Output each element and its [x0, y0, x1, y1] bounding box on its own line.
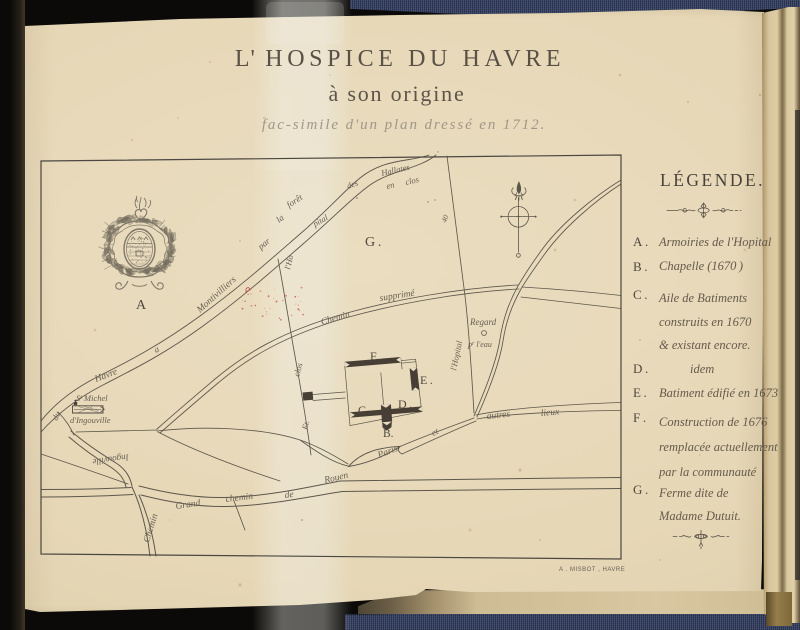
svg-text:Et.: Et. [300, 419, 311, 431]
svg-text:chemin: chemin [225, 492, 254, 505]
svg-text:a: a [152, 344, 161, 355]
svg-text:lieux: lieux [540, 407, 560, 419]
svg-text:St Michel: St Michel [76, 393, 108, 403]
svg-text:du: du [50, 410, 63, 422]
svg-text:de: de [284, 490, 294, 501]
svg-text:autres: autres [486, 410, 511, 422]
svg-text:d'Ingouville: d'Ingouville [70, 415, 111, 425]
svg-text:en: en [385, 179, 395, 191]
svg-text:forêt: forêt [285, 192, 305, 210]
svg-text:la: la [274, 212, 286, 224]
svg-text:supprimé: supprimé [379, 288, 416, 304]
svg-text:Regard: Regard [469, 317, 497, 327]
svg-text:l'Ho: l'Ho [282, 254, 295, 270]
svg-text:B.: B. [383, 428, 394, 440]
svg-text:40: 40 [439, 213, 450, 223]
svg-text:Montivilliers: Montivilliers [195, 275, 239, 316]
svg-text:A: A [136, 298, 147, 313]
svg-text:clos: clos [291, 361, 304, 377]
svg-text:Hallates: Hallates [379, 162, 411, 179]
svg-text:E .: E . [420, 373, 433, 387]
svg-text:Grand: Grand [175, 499, 201, 512]
svg-text:Ingouville: Ingouville [92, 452, 131, 467]
svg-text:Paris: Paris [376, 444, 400, 461]
svg-text:pr l'eau: pr l'eau [467, 340, 492, 349]
svg-text:C .: C . [358, 403, 371, 417]
svg-text:Havre: Havre [93, 367, 119, 385]
svg-text:F.: F. [370, 349, 379, 363]
svg-text:l'Hopital: l'Hopital [448, 339, 464, 371]
svg-text:et: et [430, 426, 440, 438]
svg-text:D .: D . [398, 397, 412, 411]
svg-text:Chemin: Chemin [320, 310, 351, 328]
svg-text:clos: clos [404, 174, 420, 187]
svg-text:pital: pital [310, 212, 330, 229]
svg-text:G .: G . [365, 235, 381, 250]
svg-text:Rouen: Rouen [322, 471, 349, 486]
svg-text:par: par [255, 236, 272, 253]
